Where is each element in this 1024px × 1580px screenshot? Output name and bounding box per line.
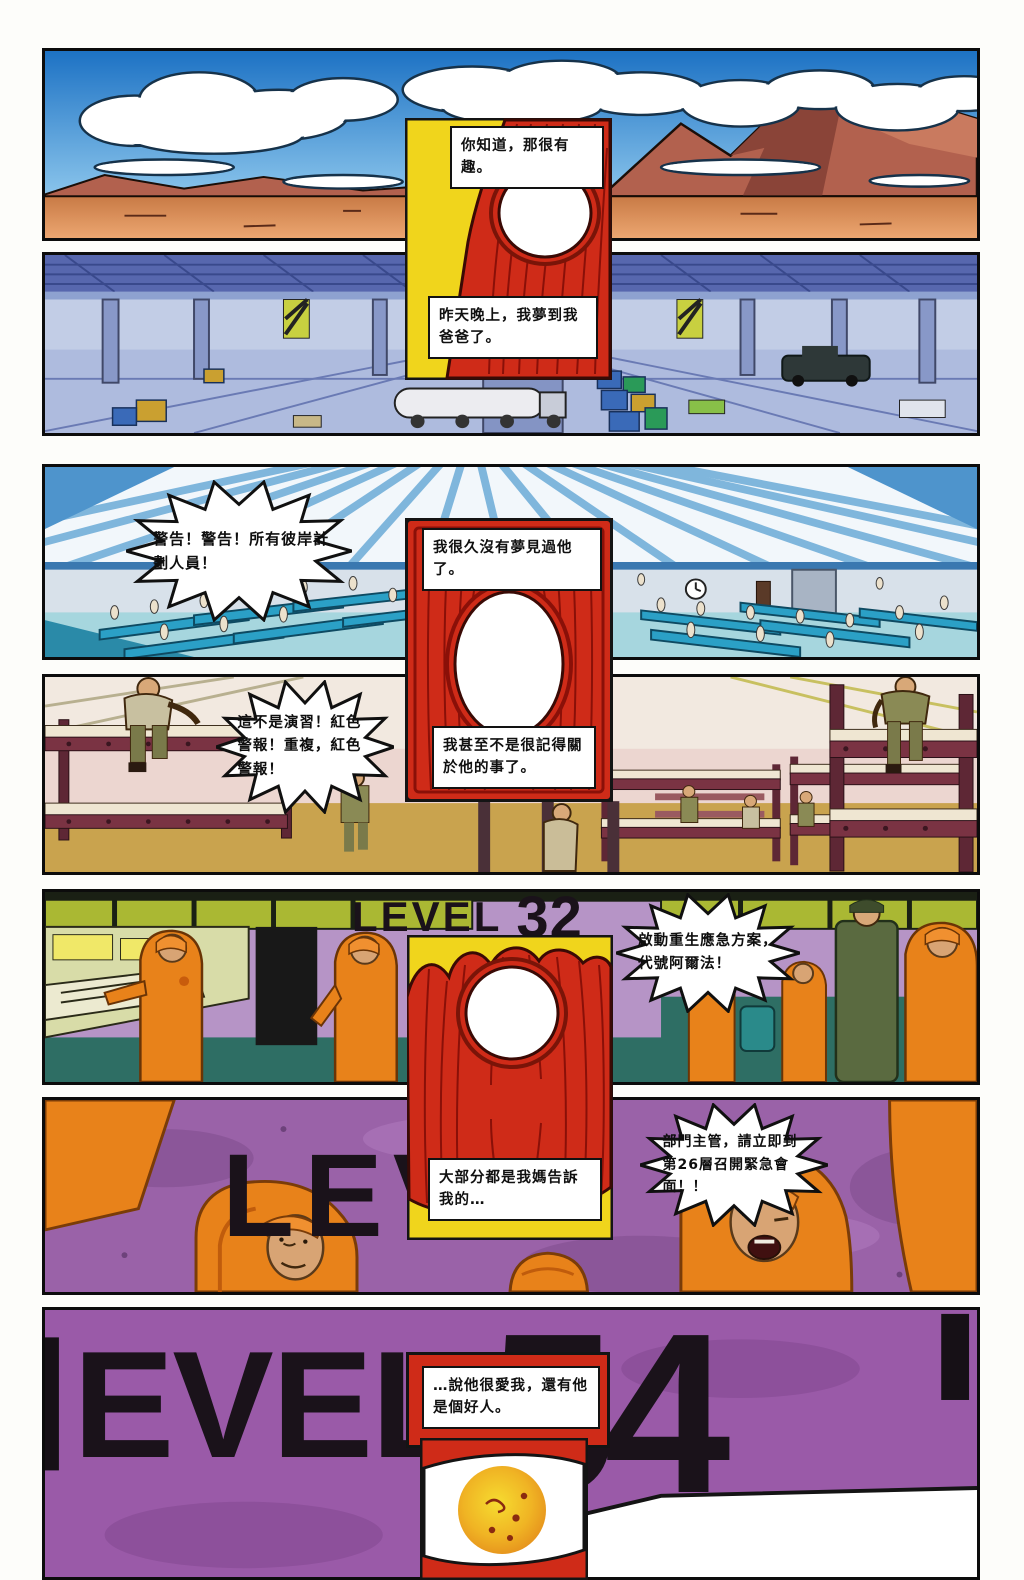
sun-art <box>420 1438 588 1580</box>
caption-2: 昨天晚上，我夢到我爸爸了。 <box>428 296 598 359</box>
bubble-warning-text: 警告！警告！所有彼岸計劃人員！ <box>153 480 329 622</box>
dark-doorway <box>256 927 318 1045</box>
bubble-red-alert-text: 這不是演習！紅色警報！重複，紅色警報！ <box>237 680 376 814</box>
caption-5: 大部分都是我媽告訴我的… <box>428 1158 602 1221</box>
bubble-meeting-text: 部門主管，請立即到第26層召開緊急會面！！ <box>663 1103 810 1227</box>
bubble-protocol: 啟動重生應急方案，代號阿爾法！ <box>616 893 800 1013</box>
caption-1: 你知道，那很有趣。 <box>450 126 604 189</box>
bubble-warning: 警告！警告！所有彼岸計劃人員！ <box>126 480 352 622</box>
caption-4: 我甚至不是很記得關於他的事了。 <box>432 726 596 789</box>
pod-hole <box>455 592 563 736</box>
level32-word: LEVEL <box>352 893 502 941</box>
bubble-protocol-text: 啟動重生應急方案，代號阿爾法！ <box>638 893 782 1013</box>
caption-3: 我很久沒有夢見過他了。 <box>422 528 602 591</box>
comic-page: LEVEL 32 <box>0 0 1024 1580</box>
pod-hole <box>466 967 558 1059</box>
insert-sun-frame <box>420 1438 588 1580</box>
caption-6: …說他很愛我，還有他是個好人。 <box>422 1366 600 1429</box>
wall-clock <box>686 579 706 598</box>
bubble-meeting: 部門主管，請立即到第26層召開緊急會面！！ <box>640 1103 828 1227</box>
bubble-red-alert: 這不是演習！紅色警報！重複，紅色警報！ <box>216 680 394 814</box>
